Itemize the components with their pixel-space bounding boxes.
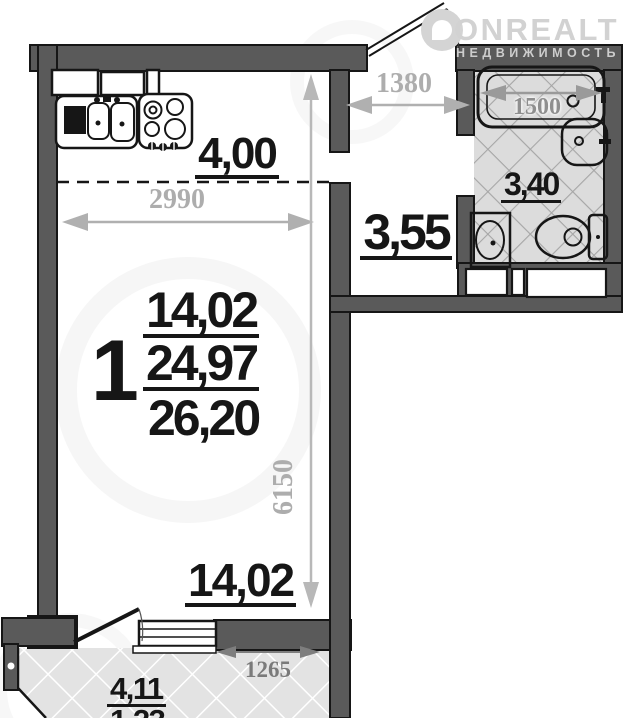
kitchen-cabinets-icon — [52, 70, 159, 95]
area-without-balcony-label: 24,97 — [143, 343, 255, 391]
kitchen-width-dimension: 2990 — [137, 186, 217, 214]
window — [133, 621, 216, 653]
rooms-count-label: 1 — [88, 336, 136, 410]
balcony-wall-detail — [8, 663, 15, 670]
bathroom-area-label: 3,40 — [501, 171, 561, 203]
dimension-arrow-2990 — [62, 213, 314, 231]
hall-width-dimension: 1380 — [360, 70, 448, 98]
room-area-label: 14,02 — [185, 562, 291, 607]
total-area-label: 26,20 — [145, 398, 257, 442]
bathtub-length-dimension: 1500 — [507, 95, 567, 119]
room-depth-dimension: 6150 — [270, 427, 298, 547]
living-area-label: 14,02 — [143, 290, 255, 338]
watermark-brand: ONREALT — [454, 14, 619, 45]
balcony-coef-area-label: 1,23 — [107, 708, 163, 718]
vent-shafts — [466, 269, 606, 297]
watermark-tagline: НЕДВИЖИМОСТЬ — [456, 47, 620, 60]
balcony-window-dimension: 1265 — [240, 658, 296, 681]
kitchen-sink-icon — [56, 96, 137, 148]
floor-plan: 4,00 2990 1380 3,55 1500 3,40 1 14,02 24… — [0, 0, 625, 718]
kitchen-area-label: 4,00 — [185, 136, 289, 179]
hall-area-label: 3,55 — [356, 212, 456, 260]
